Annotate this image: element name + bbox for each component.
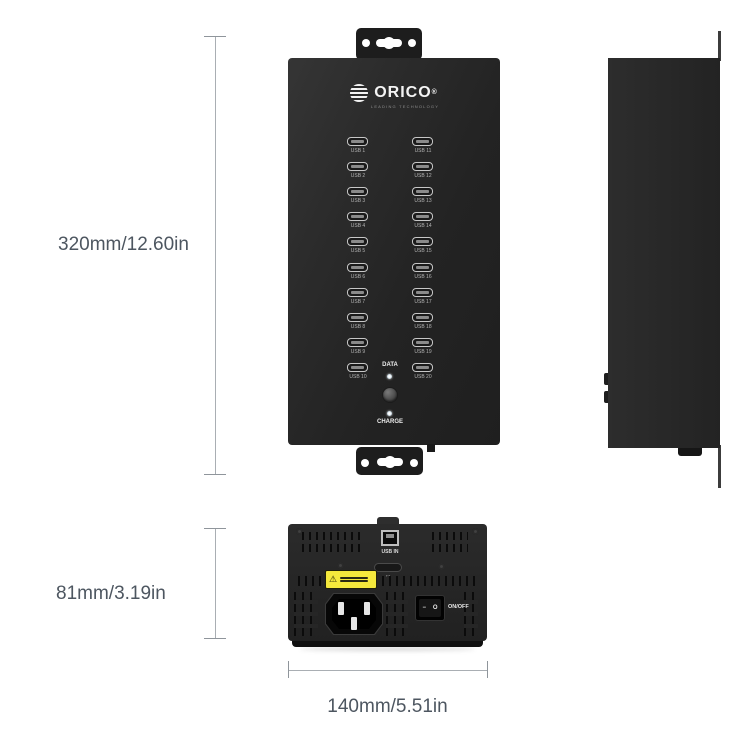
usb-port <box>347 212 368 221</box>
screw <box>337 562 344 569</box>
ac-prong <box>351 617 357 630</box>
usb-port-label: USB 7 <box>338 299 378 305</box>
mode-button <box>382 387 398 403</box>
rear-shadow <box>300 647 475 651</box>
warning-fine-print <box>340 575 368 584</box>
rear-view: USB IN ↔ ⚠ − O <box>288 517 487 651</box>
screw <box>472 528 479 535</box>
usb-port-label: USB 19 <box>403 349 443 355</box>
usb-port <box>347 137 368 146</box>
oval-recess <box>374 563 402 572</box>
dimension-tick <box>487 661 488 678</box>
usb-port-label: USB 1 <box>338 148 378 154</box>
ac-prong <box>338 602 344 615</box>
usb-port-label: USB 9 <box>338 349 378 355</box>
vent-slots <box>432 532 468 540</box>
front-view: ORICO® LEADING TECHNOLOGY DATA CHARGE US… <box>288 58 500 445</box>
mounting-slot <box>384 456 396 468</box>
usb-port-label: USB 3 <box>338 198 378 204</box>
rocker-off-mark: O <box>433 605 438 612</box>
mounting-slot <box>383 37 395 49</box>
registered-mark: ® <box>432 89 438 96</box>
mounting-hole <box>410 459 418 467</box>
mounting-ear-top <box>356 28 422 60</box>
side-bracket-edge-top <box>718 31 721 61</box>
usb-port <box>412 237 433 246</box>
brand-name: ORICO® <box>374 84 438 102</box>
vent-slots <box>302 544 362 552</box>
rocker-on-mark: − <box>422 605 426 612</box>
data-led <box>387 374 392 379</box>
power-rocker-face: − O <box>419 599 441 617</box>
mounting-hole <box>408 39 416 47</box>
usb-port <box>412 263 433 272</box>
warning-icon: ⚠ <box>329 575 337 584</box>
usb-port-label: USB 4 <box>338 223 378 229</box>
usb-port-label: USB 6 <box>338 274 378 280</box>
side-view <box>608 58 720 448</box>
ac-power-inlet <box>325 593 383 635</box>
vent-slots <box>386 592 408 636</box>
usb-port <box>412 338 433 347</box>
vent-slots <box>302 532 362 540</box>
side-foot <box>678 448 702 456</box>
usb-port-label: USB 16 <box>403 274 443 280</box>
dimension-tick <box>204 474 226 475</box>
dimension-label-front-height: 320mm/12.60in <box>58 234 189 256</box>
usb-port-label: USB 12 <box>403 173 443 179</box>
usb-port-label: USB 15 <box>403 248 443 254</box>
usb-port <box>347 313 368 322</box>
vent-slots <box>294 592 318 636</box>
dimension-line-rear-height <box>215 528 216 638</box>
usb-b-input-port <box>381 530 399 546</box>
on-off-label: ON/OFF <box>448 604 484 610</box>
warning-sticker: ⚠ <box>325 570 377 589</box>
usb-in-label: USB IN <box>369 549 411 555</box>
usb-port <box>347 338 368 347</box>
orico-logo-icon <box>350 84 368 102</box>
usb-port <box>347 288 368 297</box>
dimension-tick <box>204 36 226 37</box>
data-led-label: DATA <box>370 362 410 368</box>
dimension-tick <box>204 638 226 639</box>
mounting-hole <box>362 39 370 47</box>
usb-port <box>347 237 368 246</box>
usb-port <box>347 162 368 171</box>
usb-port-label: USB 8 <box>338 324 378 330</box>
dimension-line-front-height <box>215 36 216 474</box>
ac-prong <box>364 602 370 615</box>
screw <box>438 563 445 570</box>
mounting-hole <box>361 459 369 467</box>
usb-port-label: USB 2 <box>338 173 378 179</box>
usb-port-label: USB 18 <box>403 324 443 330</box>
usb-port-label: USB 5 <box>338 248 378 254</box>
dimension-label-rear-height: 81mm/3.19in <box>56 583 166 605</box>
usb-port <box>412 313 433 322</box>
side-bracket-edge-bottom <box>718 445 721 488</box>
usb-port <box>412 137 433 146</box>
product-dimension-diagram: 320mm/12.60in 81mm/3.19in 140mm/5.51in O… <box>0 0 750 750</box>
usb-port-label: USB 14 <box>403 223 443 229</box>
vent-slots <box>432 544 468 552</box>
brand-tagline: LEADING TECHNOLOGY <box>288 104 500 109</box>
charge-led <box>387 411 392 416</box>
usb-port-label: USB 13 <box>403 198 443 204</box>
side-protrusion <box>604 373 608 385</box>
chassis-notch <box>427 444 435 452</box>
orico-logo: ORICO® <box>288 84 500 102</box>
usb-port <box>412 363 433 372</box>
vent-slots <box>464 592 478 636</box>
power-rocker-switch: − O <box>415 595 445 621</box>
usb-port <box>412 212 433 221</box>
side-protrusion <box>604 391 608 403</box>
mounting-ear-bottom <box>356 447 423 475</box>
usb-port-label: USB 10 <box>338 374 378 380</box>
usb-port <box>412 288 433 297</box>
charge-led-label: CHARGE <box>370 419 410 425</box>
dimension-tick <box>204 528 226 529</box>
dimension-label-width: 140mm/5.51in <box>288 696 487 718</box>
usb-port <box>412 187 433 196</box>
usb-port-label: USB 17 <box>403 299 443 305</box>
usb-port <box>347 263 368 272</box>
dimension-line-width <box>288 670 487 671</box>
usb-port <box>347 187 368 196</box>
usb-port <box>412 162 433 171</box>
usb-port-label: USB 11 <box>403 148 443 154</box>
usb-port-label: USB 20 <box>403 374 443 380</box>
usb-port <box>347 363 368 372</box>
dimension-tick <box>288 661 289 678</box>
rear-panel: USB IN ↔ ⚠ − O <box>288 524 487 641</box>
